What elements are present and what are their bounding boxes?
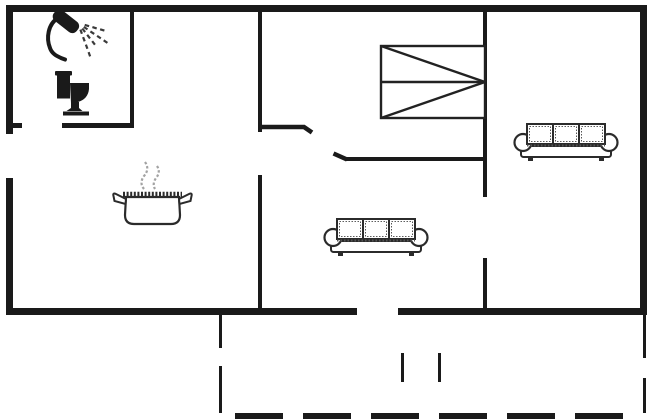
shower-icon (48, 7, 107, 59)
double-bed-icon (381, 46, 485, 118)
sofa-icon (515, 124, 618, 161)
bedroom-door-leaf (334, 154, 348, 160)
sofa-icon (325, 219, 428, 256)
toilet-icon (55, 71, 89, 116)
cooking-pot-icon (113, 162, 191, 224)
hallway-door-leaf (262, 127, 312, 133)
floor-plan (0, 0, 650, 420)
furniture-layer (0, 0, 650, 420)
